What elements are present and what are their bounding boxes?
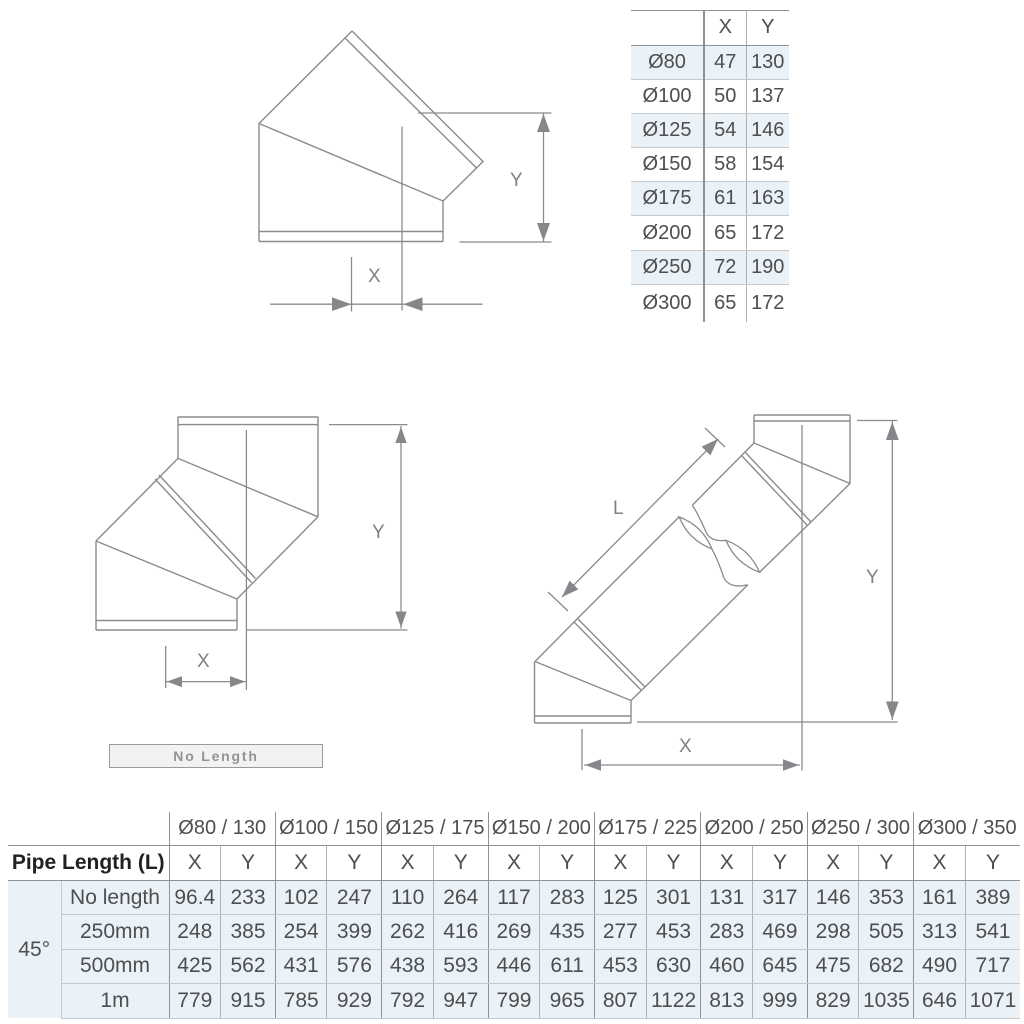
svg-text:X: X (197, 651, 210, 672)
svg-text:Y: Y (510, 170, 523, 191)
svg-text:X: X (368, 266, 381, 287)
svg-text:Y: Y (372, 522, 385, 543)
svg-text:Y: Y (866, 567, 879, 588)
svg-text:X: X (679, 736, 692, 757)
svg-text:L: L (613, 498, 624, 519)
